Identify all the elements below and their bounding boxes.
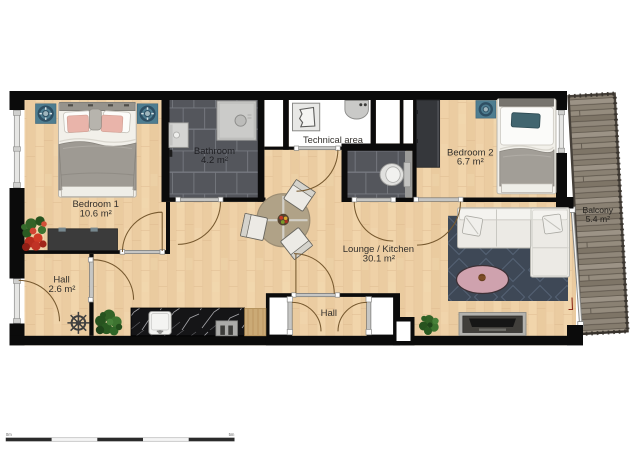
svg-text:6.7 m²: 6.7 m² bbox=[457, 157, 484, 168]
svg-text:Hall: Hall bbox=[321, 308, 337, 319]
svg-text:4.2 m²: 4.2 m² bbox=[201, 155, 228, 166]
svg-text:Technical area: Technical area bbox=[303, 135, 364, 145]
svg-text:0m: 0m bbox=[6, 432, 12, 437]
svg-text:5.4 m²: 5.4 m² bbox=[586, 214, 610, 224]
svg-text:5m: 5m bbox=[229, 432, 235, 437]
svg-text:10.6 m²: 10.6 m² bbox=[80, 208, 112, 219]
svg-text:30.1 m²: 30.1 m² bbox=[363, 253, 395, 264]
svg-text:2.6 m²: 2.6 m² bbox=[49, 284, 76, 295]
